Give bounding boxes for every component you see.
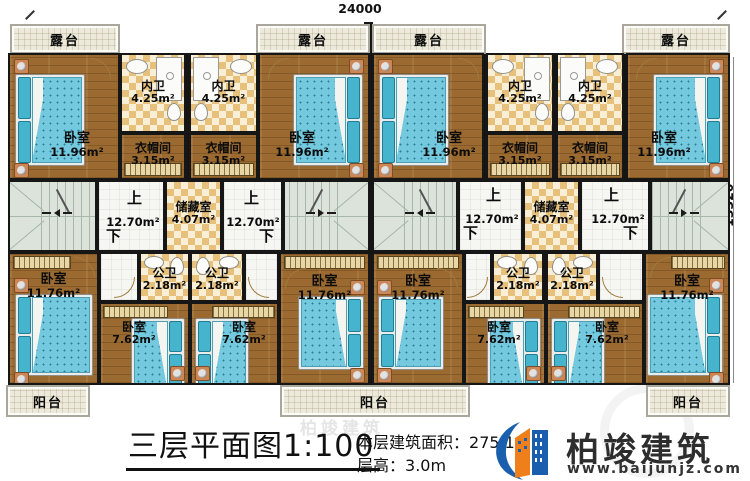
sink — [230, 59, 252, 74]
wardrobe — [377, 256, 459, 269]
room-bedroom-bottom-right: 卧室11.76m² — [644, 252, 730, 385]
room-label: 卧室 — [281, 274, 368, 289]
sink — [492, 59, 514, 74]
door-arc — [636, 58, 657, 79]
stair-down-label: 下 — [463, 226, 478, 241]
nightstand — [350, 368, 365, 383]
wardrobe — [671, 256, 725, 269]
wardrobe — [468, 306, 524, 318]
room-area: 2.18m² — [548, 280, 596, 293]
room-label: 公卫 — [494, 266, 542, 280]
room-area: 11.76m² — [10, 287, 97, 301]
wardrobe — [568, 306, 640, 318]
room-area: 11.96m² — [630, 146, 698, 160]
hall-4: 上 12.70m² 下 — [580, 180, 650, 252]
room-label: 储藏室 — [167, 200, 220, 214]
room-area: 7.62m² — [576, 334, 638, 347]
room-terrace-3: 露台 — [372, 24, 486, 54]
room-label: 公卫 — [192, 266, 242, 280]
room-label: 内卫 — [122, 79, 184, 93]
room-bedroom-small-3: 卧室7.62m² — [464, 302, 546, 385]
door-arc — [268, 58, 289, 79]
room-bedroom-top-left: 卧室11.96m² — [8, 53, 120, 180]
room-inner-bath-1: 内卫4.25m² — [120, 53, 186, 133]
room-cloakroom-4: 衣帽间3.15m² — [556, 133, 624, 180]
door-arc — [602, 277, 623, 298]
room-area: 11.96m² — [264, 146, 340, 160]
room-inner-bath-4: 内卫4.25m² — [556, 53, 624, 133]
room-label: 露台 — [414, 30, 444, 49]
door-arc — [467, 277, 488, 298]
room-terrace-4: 露台 — [622, 24, 730, 54]
door-arc — [90, 58, 111, 79]
staircase-2 — [283, 180, 370, 252]
room-cloakroom-2: 衣帽间3.15m² — [189, 133, 258, 180]
stair-up-label: 上 — [127, 191, 142, 206]
room-area: 2.18m² — [192, 280, 242, 293]
room-label: 露台 — [661, 30, 691, 49]
nightstand — [14, 59, 29, 74]
hall-bottom-3 — [464, 252, 492, 302]
dimension-top: 24000 — [310, 1, 410, 16]
room-area: 2.18m² — [494, 280, 542, 293]
room-label: 卧室 — [103, 320, 165, 334]
room-bedroom-small-1: 卧室7.62m² — [99, 302, 190, 385]
door-arc — [248, 277, 269, 298]
nightstand — [14, 163, 29, 178]
room-area: 4.25m² — [122, 93, 184, 106]
nightstand — [349, 163, 364, 178]
nightstand — [378, 163, 393, 178]
wardrobe — [103, 306, 168, 318]
hall-bottom-1 — [99, 252, 139, 302]
room-area: 4.07m² — [525, 214, 578, 227]
room-area: 4.25m² — [191, 93, 256, 106]
room-label: 卧室 — [630, 131, 698, 146]
stair-up-label: 上 — [244, 191, 259, 206]
room-label: 公卫 — [548, 266, 596, 280]
room-public-bath-3: 公卫2.18m² — [492, 252, 544, 302]
room-area: 7.62m² — [213, 334, 275, 347]
room-label: 衣帽间 — [558, 141, 622, 155]
room-label: 内卫 — [191, 79, 256, 93]
room-area: 11.76m² — [281, 289, 368, 303]
room-balcony-left: 阳台 — [6, 385, 90, 417]
room-label: 卧室 — [646, 274, 728, 289]
room-inner-bath-3: 内卫4.25m² — [486, 53, 554, 133]
room-label: 卧室 — [576, 320, 638, 334]
room-area: 2.18m² — [141, 280, 188, 293]
room-area: 11.76m² — [374, 289, 462, 303]
stair-up-label: 上 — [604, 188, 619, 203]
room-label: 卧室 — [374, 274, 462, 289]
room-label: 卧室 — [213, 320, 275, 334]
room-label: 储藏室 — [525, 200, 578, 214]
room-label: 露台 — [298, 30, 328, 49]
hall-2: 上 12.70m² 下 — [222, 180, 283, 252]
company-logo-icon — [490, 417, 566, 481]
room-area: 4.25m² — [558, 93, 622, 106]
room-balcony-right: 阳台 — [646, 385, 730, 417]
room-label: 衣帽间 — [122, 141, 184, 155]
room-terrace-1: 露台 — [10, 24, 120, 54]
room-public-bath-4: 公卫2.18m² — [546, 252, 598, 302]
room-area: 11.96m² — [38, 146, 116, 160]
nightstand — [195, 366, 210, 381]
room-inner-bath-2: 内卫4.25m² — [189, 53, 258, 133]
room-cloakroom-3: 衣帽间3.15m² — [486, 133, 554, 180]
hall-3: 上 12.70m² 下 — [458, 180, 523, 252]
company-website: www.baijunjz.com — [567, 461, 742, 477]
room-storage-2: 储藏室4.07m² — [523, 180, 580, 252]
room-bedroom-top-center-left: 卧室11.96m² — [258, 53, 370, 180]
room-label: 阳台 — [673, 392, 703, 411]
room-label: 卧室 — [38, 131, 116, 146]
nightstand — [170, 366, 185, 381]
wardrobe — [284, 256, 365, 269]
room-area: 3.15m² — [488, 155, 552, 168]
room-public-bath-1: 公卫2.18m² — [139, 252, 190, 302]
nightstand — [551, 366, 566, 381]
plan-title: 三层平面图1:100 — [126, 430, 380, 471]
room-balcony-center: 阳台 — [280, 385, 470, 417]
hall-1: 上 12.70m² 下 — [97, 180, 165, 252]
room-area: 3.15m² — [558, 155, 622, 168]
hall-bottom-2 — [244, 252, 279, 302]
bed — [298, 296, 364, 370]
room-label: 卧室 — [414, 131, 484, 146]
room-label: 公卫 — [141, 266, 188, 280]
sink — [596, 59, 618, 74]
room-area: 3.15m² — [191, 155, 256, 168]
nightstand — [526, 366, 541, 381]
room-bedroom-bottom-center-right: 卧室11.76m² — [372, 252, 464, 385]
bed — [378, 296, 444, 370]
room-bedroom-small-4: 卧室7.62m² — [546, 302, 644, 385]
room-label: 阳台 — [33, 392, 63, 411]
room-area: 7.62m² — [468, 334, 530, 347]
nightstand — [349, 59, 364, 74]
room-area: 4.25m² — [488, 93, 552, 106]
hall-bottom-4 — [598, 252, 644, 302]
room-bedroom-small-2: 卧室7.62m² — [190, 302, 279, 385]
room-storage-1: 储藏室4.07m² — [165, 180, 222, 252]
dimension-tick-right — [717, 10, 727, 20]
bed — [15, 294, 93, 376]
sink — [126, 59, 148, 74]
nightstand — [709, 59, 724, 74]
room-label: 衣帽间 — [488, 141, 552, 155]
bed — [647, 294, 723, 376]
wardrobe — [212, 306, 275, 318]
stair-down-label: 下 — [259, 229, 274, 244]
room-area: 11.76m² — [646, 289, 728, 303]
room-public-bath-2: 公卫2.18m² — [190, 252, 244, 302]
staircase-1 — [8, 180, 97, 252]
nightstand — [378, 59, 393, 74]
room-label: 露台 — [50, 30, 80, 49]
room-terrace-2: 露台 — [256, 24, 370, 54]
dimension-tick-left — [25, 10, 35, 20]
stair-down-label: 下 — [106, 229, 121, 244]
room-label: 内卫 — [558, 79, 622, 93]
staircase-3 — [372, 180, 458, 252]
nightstand — [709, 372, 724, 385]
room-label: 阳台 — [360, 392, 390, 411]
room-area: 11.96m² — [414, 146, 484, 160]
door-arc — [114, 277, 135, 298]
room-cloakroom-1: 衣帽间3.15m² — [120, 133, 186, 180]
stair-down-label: 下 — [623, 226, 638, 241]
wardrobe — [13, 256, 71, 269]
stair-up-label: 上 — [486, 188, 501, 203]
room-bedroom-bottom-center-left: 卧室11.76m² — [279, 252, 370, 385]
room-label: 卧室 — [264, 131, 340, 146]
door-arc — [458, 58, 479, 79]
room-area: 3.15m² — [122, 155, 184, 168]
room-bedroom-bottom-left: 卧室11.76m² — [8, 252, 99, 385]
room-label: 衣帽间 — [191, 141, 256, 155]
room-bedroom-top-right: 卧室11.96m² — [626, 53, 730, 180]
nightstand — [14, 372, 29, 385]
floor-plan-image: 24000 13320 柏竣建筑 柏竣建筑 柏竣建筑 露台 露台 露台 露台 卧… — [0, 0, 750, 481]
floor-height-value: 3.0m — [405, 456, 446, 475]
room-label: 内卫 — [488, 79, 552, 93]
staircase-4 — [650, 180, 730, 252]
room-bedroom-top-center-right: 卧室11.96m² — [372, 53, 484, 180]
room-label: 卧室 — [468, 320, 530, 334]
room-area: 7.62m² — [103, 334, 165, 347]
nightstand — [377, 368, 392, 383]
hall-area: 12.70m² — [588, 212, 648, 226]
room-label: 卧室 — [10, 272, 97, 287]
nightstand — [709, 163, 724, 178]
room-area: 4.07m² — [167, 214, 220, 227]
